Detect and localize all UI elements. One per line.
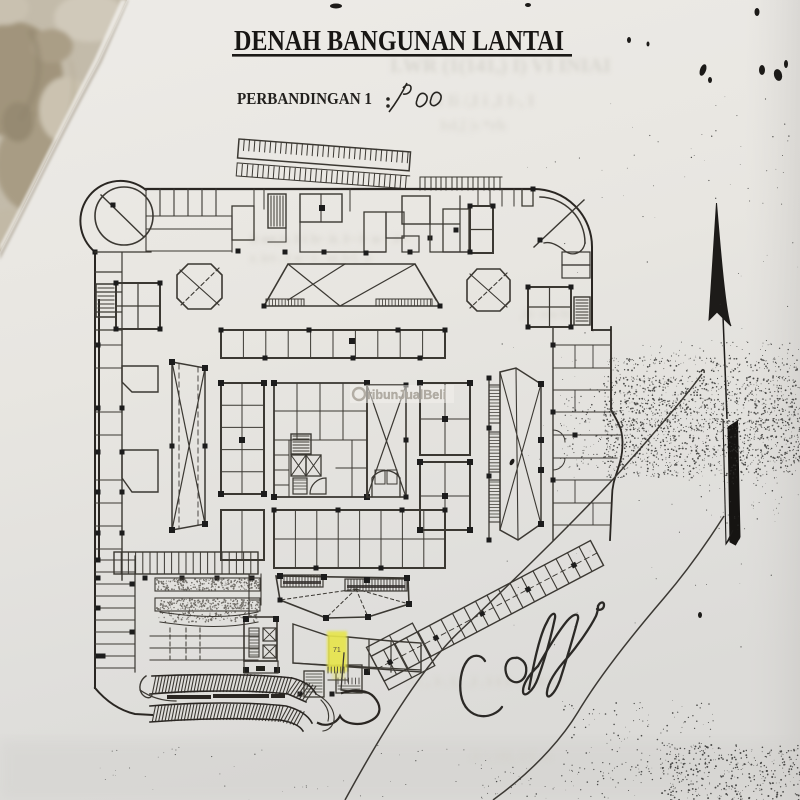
svg-text:I.WR (1(141,) I) VI INIAI: I.WR (1(141,) I) VI INIAI: [390, 55, 611, 77]
svg-text:ribunJualBeli: ribunJualBeli: [367, 388, 446, 402]
svg-text:,It· rm·lt|, .,t: ,It· rm·lt|, .,t: [520, 306, 590, 321]
svg-text:DENAH BANGUNAN LANTAI: DENAH BANGUNAN LANTAI: [234, 26, 564, 57]
svg-text:IsI,[ |s *rh: IsI,[ |s *rh: [440, 118, 506, 134]
svg-text:71: 71: [333, 647, 341, 654]
svg-text:II Ii /,I i ,I I-, I: II Ii /,I i ,I I-, I: [430, 91, 535, 110]
svg-text:PERBANDINGAN 1: PERBANDINGAN 1: [237, 89, 372, 108]
